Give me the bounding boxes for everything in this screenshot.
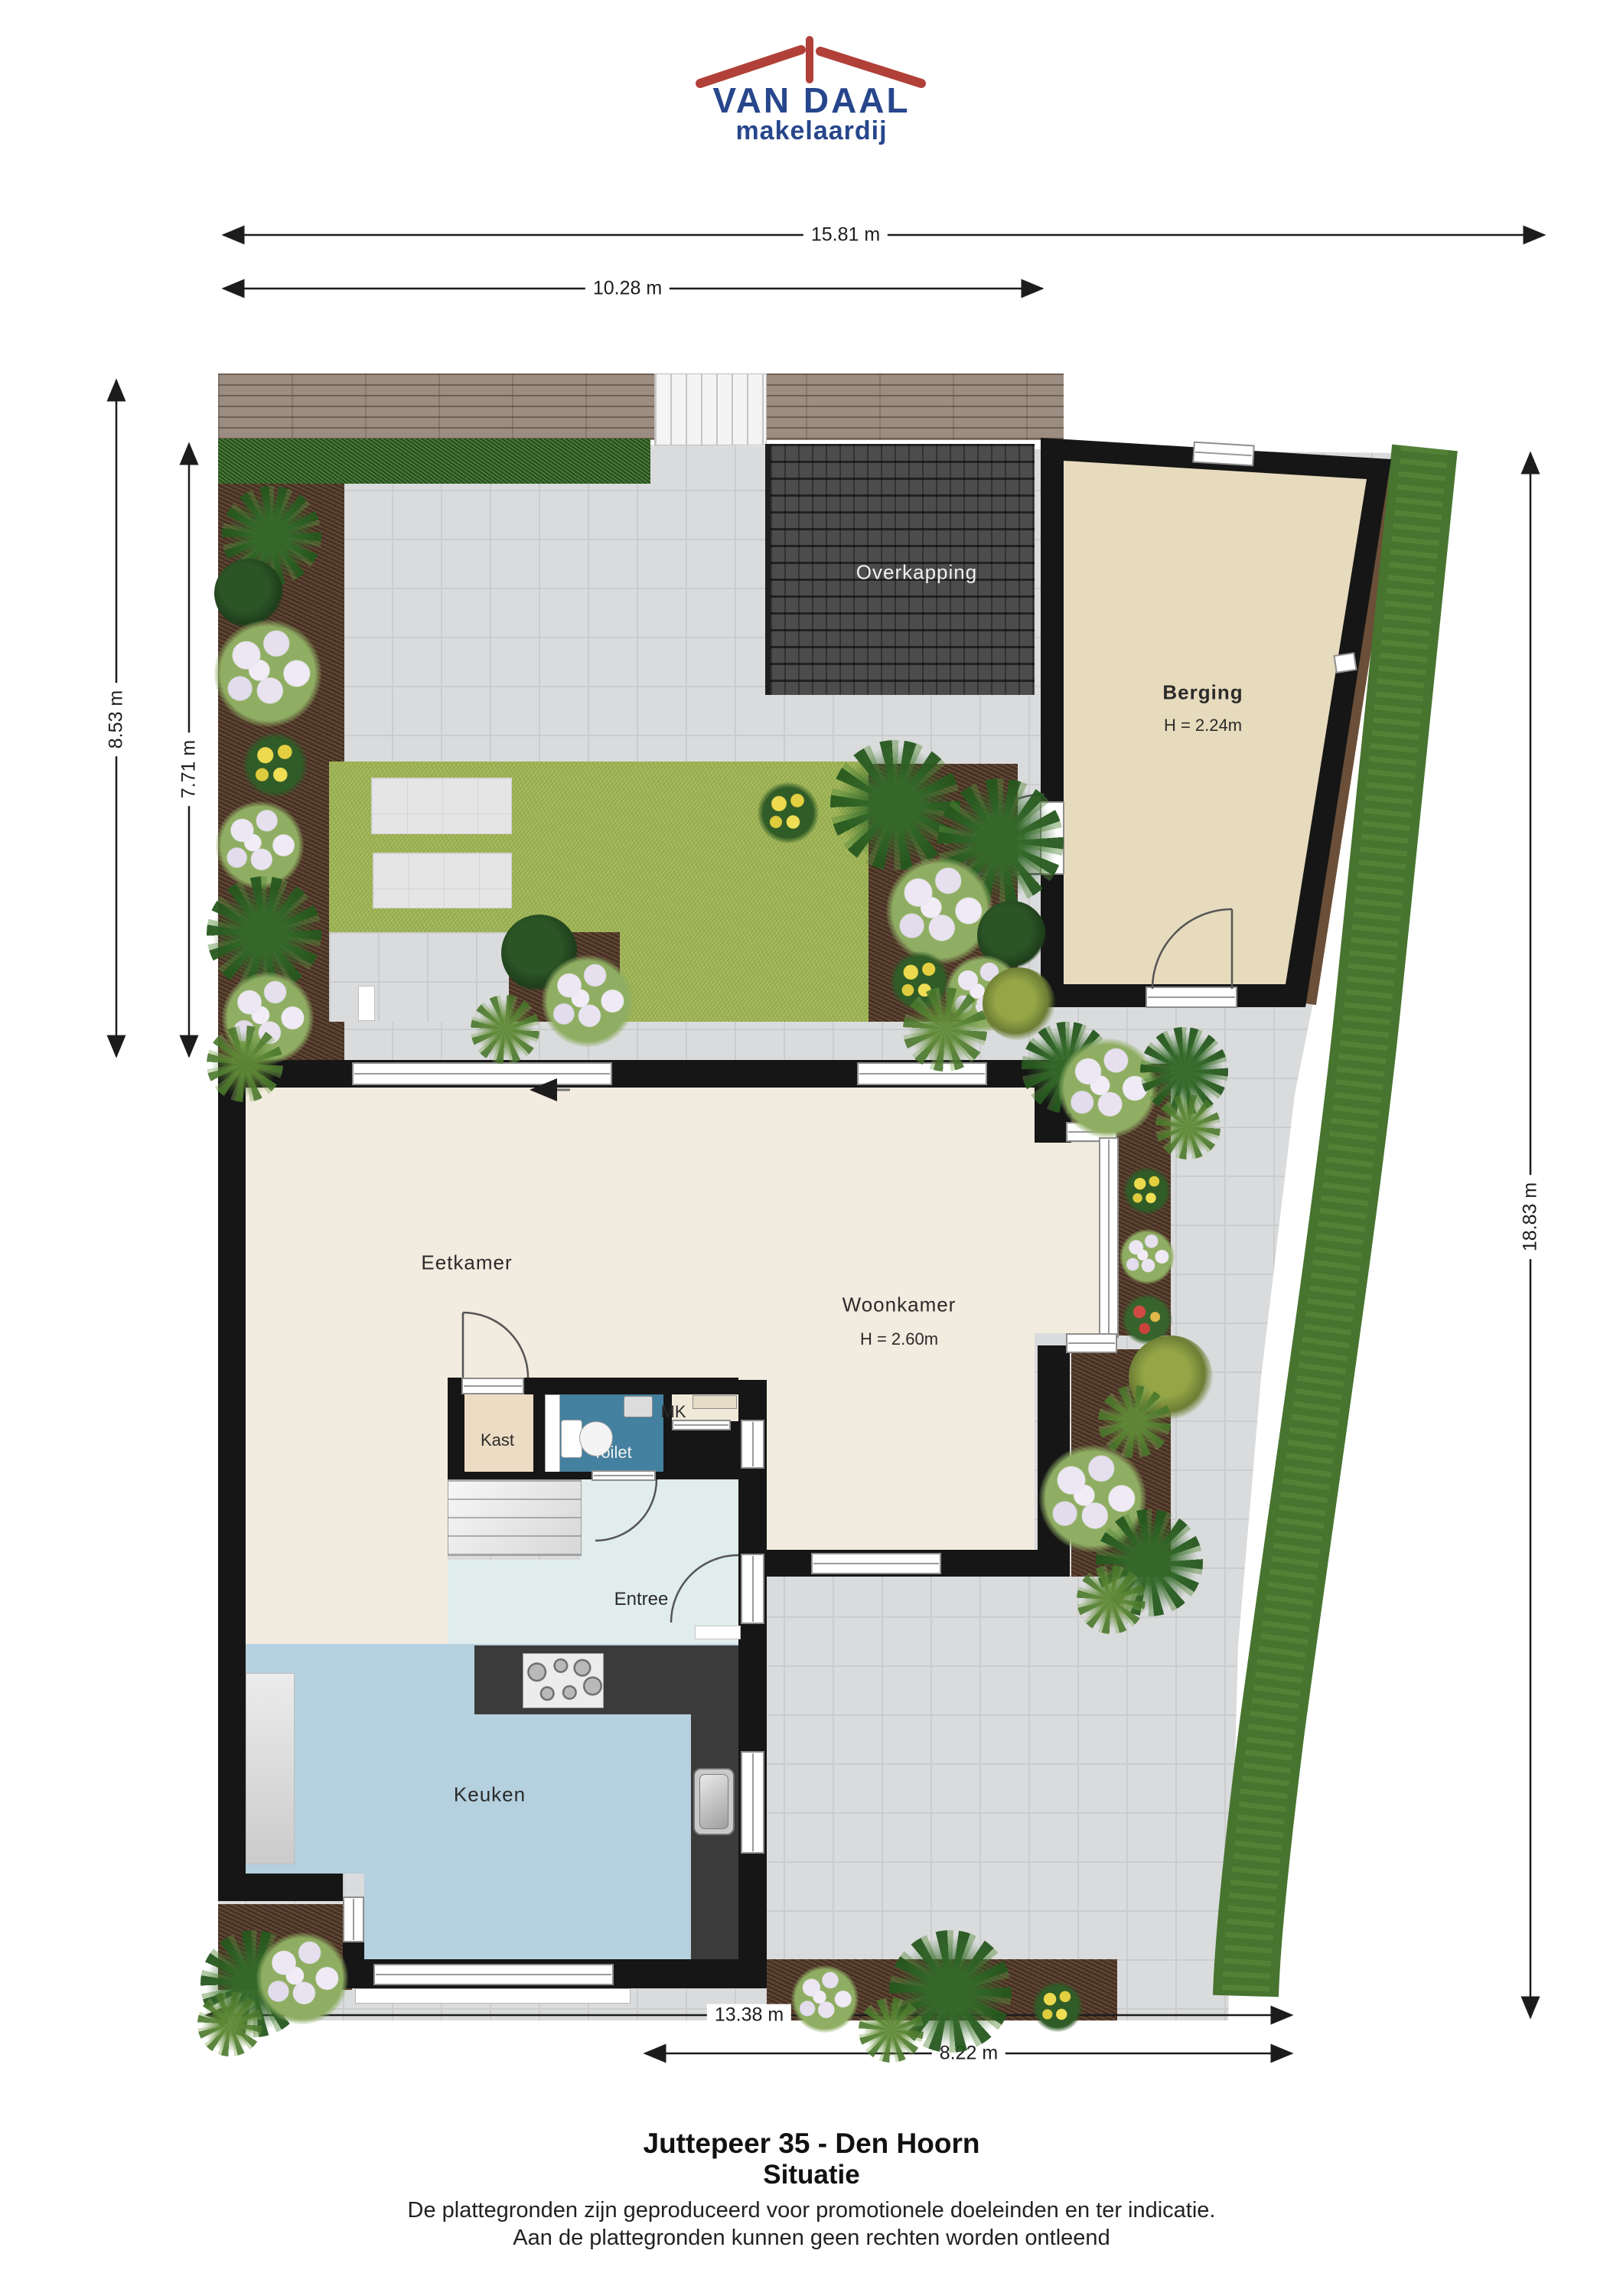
kast-door-arc <box>463 1313 528 1378</box>
plant-flowers-yellow <box>758 782 819 843</box>
floorplan-page: VAN DAAL makelaardij <box>0 0 1623 2296</box>
dim-garden-depth-inner: 7.71 m <box>178 732 200 806</box>
plant-bush <box>214 559 283 628</box>
toilet-door-arc <box>595 1479 657 1541</box>
plant-fern <box>207 1026 283 1102</box>
plant-fern <box>197 1991 262 2056</box>
front-door-arc <box>671 1555 738 1623</box>
plant-flowers-white <box>791 1965 859 2033</box>
label-berging-height: H = 2.24m <box>1164 716 1242 735</box>
footer-subtitle: Situatie <box>763 2160 859 2190</box>
label-woonkamer-height: H = 2.60m <box>860 1329 938 1349</box>
label-overkapping: Overkapping <box>856 561 977 585</box>
plant-fern <box>903 987 987 1071</box>
label-eetkamer: Eetkamer <box>421 1251 512 1275</box>
plant-fern <box>859 1998 924 2063</box>
plant-flowers-yellow <box>243 732 308 797</box>
label-kast: Kast <box>481 1430 514 1450</box>
plant-flowers-white <box>886 857 993 964</box>
label-entree: Entree <box>614 1589 669 1610</box>
label-keuken: Keuken <box>454 1783 526 1807</box>
footer-disclaimer-2: Aan de plattegronden kunnen geen rechten… <box>513 2226 1110 2251</box>
label-woonkamer: Woonkamer <box>842 1293 957 1317</box>
plant-fern <box>471 995 539 1064</box>
plant-fern <box>1077 1565 1146 1634</box>
plant-flowers-yellow <box>1123 1167 1171 1215</box>
plant-flowers-white <box>214 620 321 727</box>
footer-title: Juttepeer 35 - Den Hoorn <box>644 2128 980 2160</box>
plant-flowers-white <box>1119 1229 1175 1284</box>
plant-flowers-yellow <box>1032 1981 1083 2032</box>
plant-flowers-white <box>256 1932 348 2024</box>
dim-total-width: 15.81 m <box>803 224 888 246</box>
plant-fern <box>1155 1094 1221 1159</box>
label-mk: MK <box>661 1402 686 1422</box>
dim-garden-depth: 8.53 m <box>106 683 128 756</box>
plant-flowers-white <box>542 955 634 1047</box>
footer-disclaimer-1: De plattegronden zijn geproduceerd voor … <box>408 2198 1216 2223</box>
dim-plot-depth: 18.83 m <box>1520 1175 1542 1259</box>
label-toilet: Toilet <box>592 1443 631 1463</box>
label-berging: Berging <box>1162 681 1243 705</box>
dim-garden-width: 10.28 m <box>585 278 670 300</box>
dim-house-width: 13.38 m <box>707 2004 791 2027</box>
